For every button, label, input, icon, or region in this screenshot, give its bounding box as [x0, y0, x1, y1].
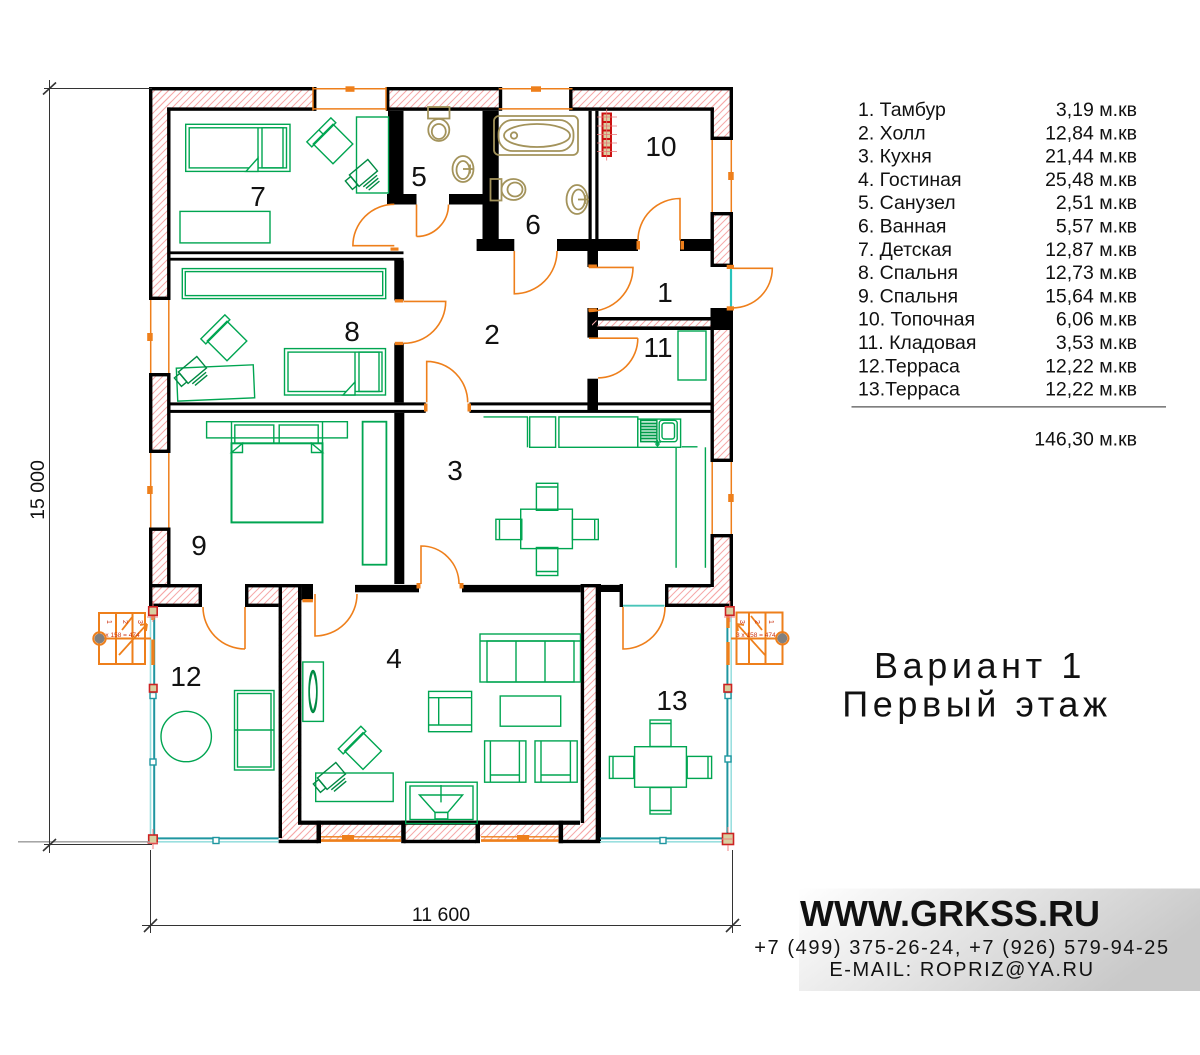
svg-text:12,73 м.кв: 12,73 м.кв: [1045, 262, 1137, 284]
svg-text:1. Тамбур: 1. Тамбур: [858, 99, 946, 121]
svg-text:2: 2: [753, 620, 760, 624]
svg-text:3,53 м.кв: 3,53 м.кв: [1056, 332, 1137, 354]
svg-text:9. Спальня: 9. Спальня: [858, 285, 958, 307]
svg-text:10: 10: [645, 131, 676, 162]
svg-text:4. Гостиная: 4. Гостиная: [858, 169, 962, 191]
svg-text:12.Терраса: 12.Терраса: [858, 355, 960, 377]
svg-text:12,84 м.кв: 12,84 м.кв: [1045, 122, 1137, 144]
svg-text:12,22 м.кв: 12,22 м.кв: [1045, 379, 1137, 401]
svg-text:WWW.GRKSS.RU: WWW.GRKSS.RU: [800, 893, 1100, 934]
svg-text:5. Санузел: 5. Санузел: [858, 192, 956, 214]
svg-text:146,30 м.кв: 146,30 м.кв: [1034, 429, 1137, 451]
svg-text:12,87 м.кв: 12,87 м.кв: [1045, 239, 1137, 261]
svg-text:3: 3: [136, 620, 143, 624]
svg-text:6: 6: [525, 209, 541, 240]
svg-text:1: 1: [657, 277, 673, 308]
svg-text:15 000: 15 000: [27, 460, 49, 520]
svg-text:E-MAIL: ROPRIZ@YA.RU: E-MAIL: ROPRIZ@YA.RU: [829, 959, 1094, 981]
svg-text:4: 4: [386, 643, 402, 674]
svg-text:7: 7: [250, 181, 266, 212]
svg-text:5: 5: [411, 161, 427, 192]
svg-text:12: 12: [170, 661, 201, 692]
svg-text:12,22 м.кв: 12,22 м.кв: [1045, 355, 1137, 377]
svg-text:2. Холл: 2. Холл: [858, 122, 926, 144]
svg-text:6,06 м.кв: 6,06 м.кв: [1056, 309, 1137, 331]
svg-text:11: 11: [643, 332, 672, 363]
svg-text:2: 2: [484, 319, 500, 350]
svg-text:5,57 м.кв: 5,57 м.кв: [1056, 216, 1137, 238]
svg-text:+7 (499) 375-26-24, +7 (926) 5: +7 (499) 375-26-24, +7 (926) 579-94-25: [754, 937, 1170, 959]
svg-text:8. Спальня: 8. Спальня: [858, 262, 958, 284]
svg-text:1: 1: [767, 620, 774, 624]
svg-text:13: 13: [656, 685, 687, 716]
svg-text:2: 2: [121, 620, 128, 624]
svg-text:3: 3: [447, 455, 463, 486]
svg-text:15,64 м.кв: 15,64 м.кв: [1045, 285, 1137, 307]
svg-text:9: 9: [191, 530, 207, 561]
svg-text:2,51 м.кв: 2,51 м.кв: [1056, 192, 1137, 214]
svg-text:3. Кухня: 3. Кухня: [858, 146, 932, 168]
svg-text:3,19 м.кв: 3,19 м.кв: [1056, 99, 1137, 121]
svg-text:1: 1: [105, 620, 112, 624]
svg-text:11 600: 11 600: [412, 904, 470, 926]
svg-text:Первый этаж: Первый этаж: [842, 684, 1111, 725]
svg-text:25,48 м.кв: 25,48 м.кв: [1045, 169, 1137, 191]
svg-text:13.Терраса: 13.Терраса: [858, 379, 960, 401]
svg-text:3: 3: [738, 620, 745, 624]
svg-text:10. Топочная: 10. Топочная: [858, 309, 975, 331]
svg-text:3 x 158 = 474: 3 x 158 = 474: [736, 632, 776, 639]
svg-text:6. Ванная: 6. Ванная: [858, 216, 946, 238]
svg-text:21,44 м.кв: 21,44 м.кв: [1045, 146, 1137, 168]
svg-text:11. Кладовая: 11. Кладовая: [858, 332, 976, 354]
svg-text:7. Детская: 7. Детская: [858, 239, 952, 261]
svg-text:Вариант 1: Вариант 1: [874, 645, 1086, 686]
svg-text:8: 8: [344, 316, 360, 347]
